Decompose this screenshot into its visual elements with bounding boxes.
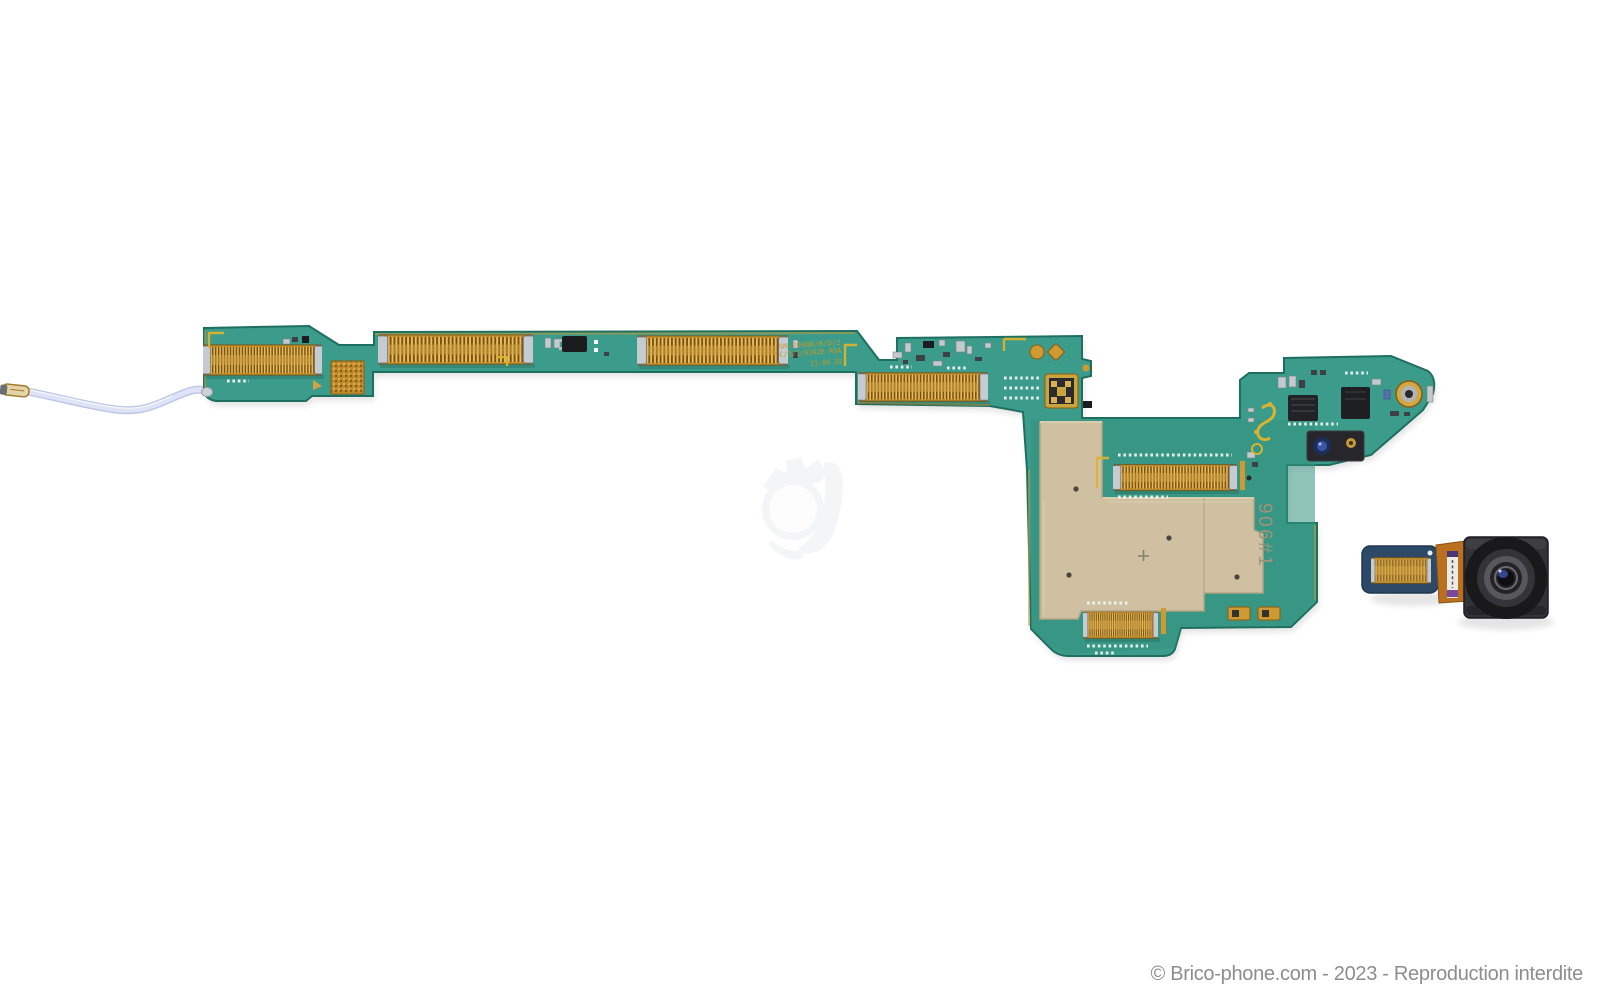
gold-bar-mark: [1240, 461, 1245, 490]
b2b-connector-6: [1083, 612, 1159, 638]
microphone-pad: [1396, 381, 1422, 407]
front-camera-module: [1362, 537, 1548, 619]
product-photo: SM-F9080/B/D/2 C/3/1/9302B R0A 21.04.30: [0, 0, 1600, 999]
b2b-connector-3: [636, 336, 789, 365]
antenna-cable: [0, 383, 206, 410]
ic-chip-1: [1288, 395, 1318, 421]
shield-marking-text: 906#1: [1254, 503, 1275, 568]
camera-body: [1464, 537, 1548, 619]
ic-chip-2: [1341, 387, 1370, 419]
edge-tab-pad: [1083, 365, 1090, 372]
b2b-connector-2: [377, 335, 534, 364]
watermark-logo: [762, 457, 843, 560]
gold-pad-textured: [331, 361, 364, 394]
cable-solder-joint: [202, 388, 213, 397]
smd-chip: [559, 336, 587, 352]
camera-lens: [1465, 537, 1547, 619]
b2b-connector-5: [1112, 465, 1238, 491]
photo-canvas: SM-F9080/B/D/2 C/3/1/9302B R0A 21.04.30: [0, 0, 1600, 999]
watermark-text: © Brico-phone.com - 2023 - Reproduction …: [1151, 963, 1584, 986]
gold-bar-mark-2: [1161, 608, 1166, 634]
antenna-tip: [0, 383, 30, 397]
proximity-sensor: [1307, 431, 1364, 461]
gold-circle-pad: [1030, 345, 1044, 359]
b2b-connector-1: [202, 345, 322, 375]
b2b-connector-4: [857, 373, 989, 401]
shielded-ic: [1045, 374, 1078, 408]
camera-flex-connector: [1371, 558, 1432, 584]
